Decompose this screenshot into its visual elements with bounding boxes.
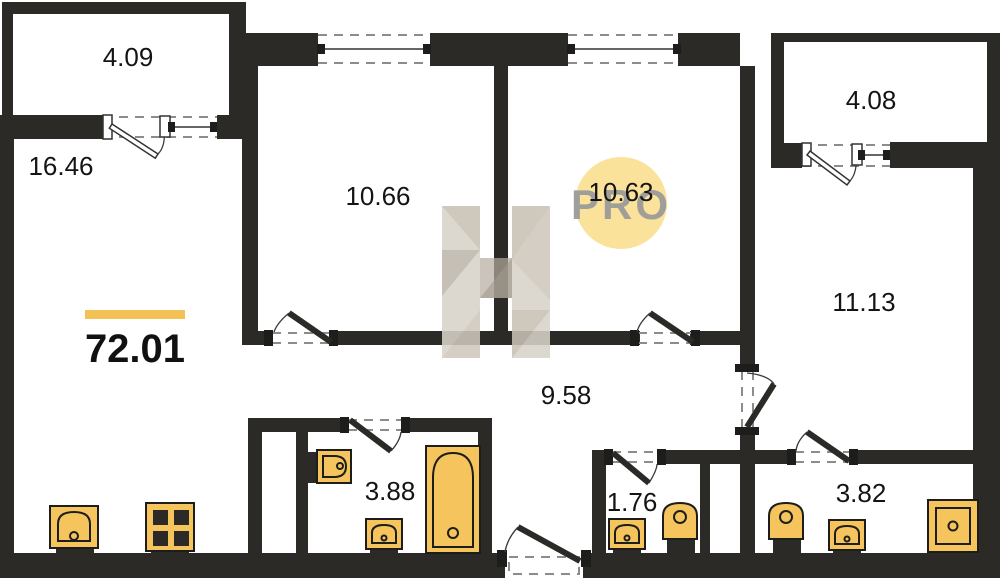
shower-icon — [928, 500, 978, 552]
door-icon — [604, 449, 666, 483]
wall — [242, 33, 258, 345]
room-area-label-hallway: 9.58 — [541, 380, 592, 410]
wall — [2, 2, 244, 14]
wall — [494, 66, 508, 345]
wall — [0, 115, 14, 578]
room-area-label-bedroom-2: 10.63 — [588, 177, 653, 207]
room-area-label-balcony-left: 4.09 — [103, 42, 154, 72]
door-icon — [735, 364, 774, 435]
kitchen-sink-icon — [50, 506, 98, 554]
wall — [740, 66, 755, 371]
room-area-label-wc: 1.76 — [607, 487, 658, 517]
wall — [592, 450, 606, 553]
wall — [248, 418, 348, 432]
total-area-value: 72.01 — [85, 327, 185, 371]
room-area-label-bedroom-3: 11.13 — [832, 287, 895, 317]
total-area: 72.01 — [85, 310, 185, 371]
toilet-icon — [663, 503, 697, 553]
washbasin-icon — [609, 519, 645, 553]
floor-plan: PRO 4.09 16.46 10.66 10.63 11.13 4.08 9.… — [0, 0, 1000, 578]
door-icon — [787, 432, 858, 465]
wall — [2, 2, 13, 124]
door-icon — [630, 313, 700, 346]
balcony-door-window-icon — [802, 143, 890, 185]
wall — [771, 143, 802, 168]
balcony-door-window-icon — [103, 115, 217, 158]
room-area-label-bathroom: 3.88 — [365, 476, 416, 506]
entrance-door-icon — [497, 527, 591, 574]
washbasin-icon — [366, 519, 402, 554]
wall — [0, 553, 505, 578]
wall — [0, 115, 103, 139]
washbasin-icon — [829, 520, 865, 554]
room-area-label-balcony-right: 4.08 — [846, 85, 897, 115]
wall — [700, 464, 710, 553]
door-icon — [340, 417, 410, 451]
toilet-icon — [769, 503, 803, 553]
door-icon — [264, 313, 338, 346]
window-icon — [317, 35, 431, 63]
wall — [296, 432, 308, 553]
total-area-underline — [85, 310, 185, 319]
wall — [890, 142, 975, 168]
wall — [740, 427, 755, 553]
wall — [850, 450, 975, 464]
window-icon — [567, 35, 681, 63]
bathtub-icon — [426, 446, 480, 553]
floor-plan-page: PRO 4.09 16.46 10.66 10.63 11.13 4.08 9.… — [0, 0, 1000, 578]
wall — [771, 33, 1000, 42]
wall — [771, 33, 784, 143]
wall — [678, 33, 740, 66]
wall — [583, 553, 1000, 578]
wall — [430, 33, 568, 66]
wall — [658, 450, 795, 464]
wall — [330, 331, 640, 345]
wall — [402, 418, 492, 432]
room-area-label-living-kitchen: 16.46 — [28, 151, 93, 181]
stove-icon — [146, 503, 194, 555]
toilet-icon — [303, 450, 351, 483]
wall — [248, 418, 262, 553]
room-area-label-shower-room: 3.82 — [836, 478, 887, 508]
room-area-label-bedroom-1: 10.66 — [345, 181, 410, 211]
